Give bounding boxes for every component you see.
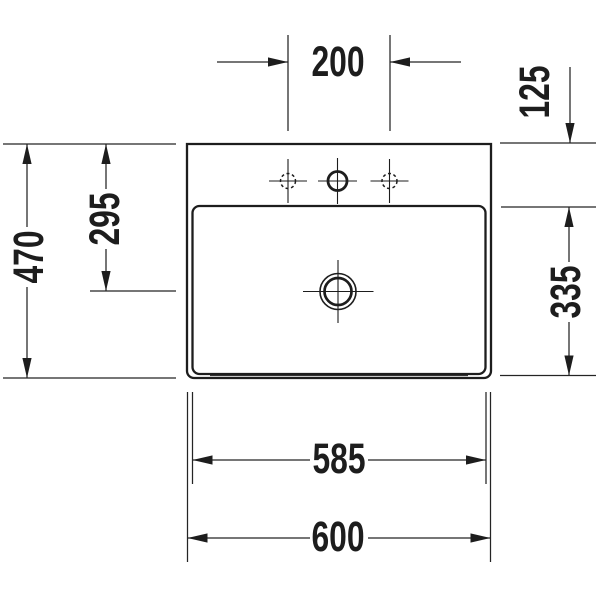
dim-label-295: 295 bbox=[81, 192, 129, 245]
arrow-600-right-icon bbox=[471, 533, 491, 542]
tap-hole-left bbox=[269, 159, 307, 203]
dim-label-470: 470 bbox=[5, 230, 53, 283]
tap-hole-right bbox=[371, 159, 409, 203]
dim-label-200: 200 bbox=[311, 38, 364, 86]
tap-hole-center-crosshair-icon bbox=[318, 158, 357, 204]
arrow-585-left-icon bbox=[193, 455, 213, 464]
arrow-200-left-icon bbox=[390, 57, 410, 66]
arrow-335-up-icon bbox=[564, 207, 573, 227]
arrow-470-up-icon bbox=[22, 144, 31, 164]
drawing-canvas: 200 125 470 295 335 585 600 bbox=[0, 0, 600, 600]
arrow-200-right-icon bbox=[268, 57, 288, 66]
arrow-125-down-icon bbox=[565, 123, 574, 143]
arrow-335-down-icon bbox=[564, 356, 573, 376]
arrow-585-right-icon bbox=[466, 455, 486, 464]
sink-outer-edge bbox=[187, 144, 491, 378]
drain bbox=[303, 260, 374, 323]
arrow-295-up-icon bbox=[101, 144, 110, 164]
tap-hole-right-crosshair-icon bbox=[371, 159, 409, 203]
tap-hole-center bbox=[318, 158, 357, 204]
arrow-470-down-icon bbox=[22, 358, 31, 378]
tap-hole-left-crosshair-icon bbox=[269, 159, 307, 203]
dim-label-125: 125 bbox=[511, 65, 559, 118]
dim-label-600: 600 bbox=[311, 513, 364, 561]
dim-label-585: 585 bbox=[312, 435, 365, 483]
dim-label-335: 335 bbox=[542, 265, 590, 318]
arrow-295-down-icon bbox=[101, 271, 110, 291]
arrow-600-left-icon bbox=[188, 533, 208, 542]
washbasin-dimension-drawing: 200 125 470 295 335 585 600 bbox=[0, 0, 600, 600]
basin-inner-edge bbox=[193, 206, 486, 374]
drain-crosshair-icon bbox=[303, 260, 374, 323]
